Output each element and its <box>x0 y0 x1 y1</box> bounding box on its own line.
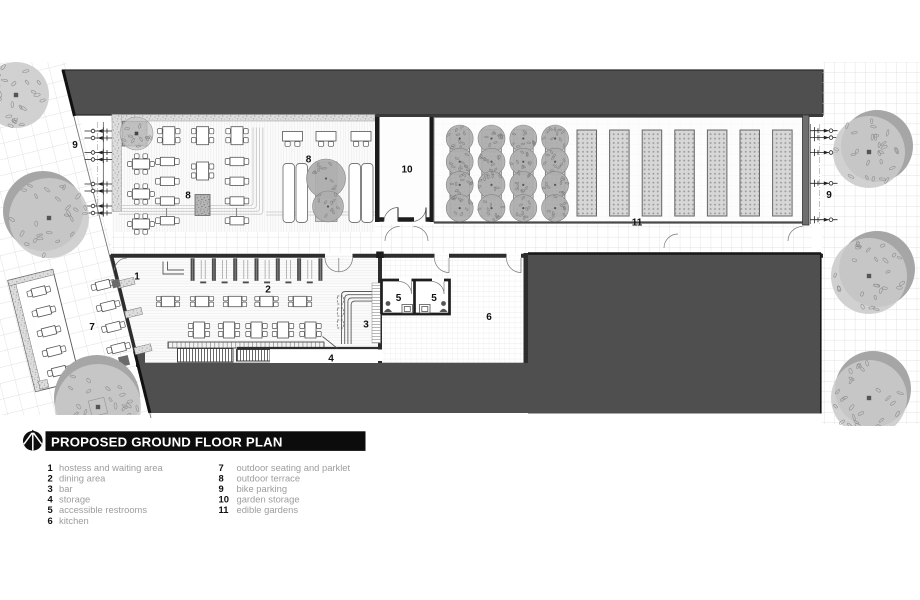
svg-text:1: 1 <box>48 462 53 473</box>
svg-text:hostess and waiting area: hostess and waiting area <box>59 462 163 473</box>
svg-text:kitchen: kitchen <box>59 515 89 526</box>
svg-text:5: 5 <box>48 504 53 515</box>
svg-text:outdoor terrace: outdoor terrace <box>237 472 301 483</box>
svg-text:4: 4 <box>328 354 334 365</box>
svg-text:garden storage: garden storage <box>237 494 300 505</box>
svg-text:11: 11 <box>632 218 643 229</box>
svg-text:3: 3 <box>48 483 53 494</box>
svg-text:2: 2 <box>48 472 53 483</box>
svg-text:9: 9 <box>826 190 832 201</box>
svg-text:9: 9 <box>72 140 78 151</box>
svg-text:11: 11 <box>219 504 229 515</box>
svg-text:accessible restrooms: accessible restrooms <box>59 504 147 515</box>
svg-text:7: 7 <box>89 322 95 333</box>
svg-text:dining area: dining area <box>59 472 106 483</box>
svg-text:outdoor seating and parklet: outdoor seating and parklet <box>237 462 351 473</box>
svg-text:9: 9 <box>219 483 224 494</box>
svg-text:8: 8 <box>306 155 312 166</box>
svg-text:1: 1 <box>134 272 140 283</box>
svg-text:7: 7 <box>219 462 224 473</box>
svg-text:6: 6 <box>486 312 492 323</box>
svg-text:3: 3 <box>363 320 369 331</box>
svg-text:bike parking: bike parking <box>237 483 288 494</box>
svg-text:6: 6 <box>48 515 53 526</box>
svg-text:10: 10 <box>401 165 413 176</box>
svg-text:5: 5 <box>396 293 402 304</box>
svg-text:10: 10 <box>219 494 229 505</box>
svg-text:5: 5 <box>431 293 437 304</box>
svg-text:4: 4 <box>48 494 54 505</box>
svg-text:bar: bar <box>59 483 73 494</box>
svg-text:2: 2 <box>265 285 271 296</box>
svg-text:edible gardens: edible gardens <box>237 504 299 515</box>
svg-text:storage: storage <box>59 494 90 505</box>
svg-text:8: 8 <box>185 191 191 202</box>
svg-text:PROPOSED GROUND FLOOR PLAN: PROPOSED GROUND FLOOR PLAN <box>51 434 283 449</box>
svg-text:8: 8 <box>219 472 224 483</box>
